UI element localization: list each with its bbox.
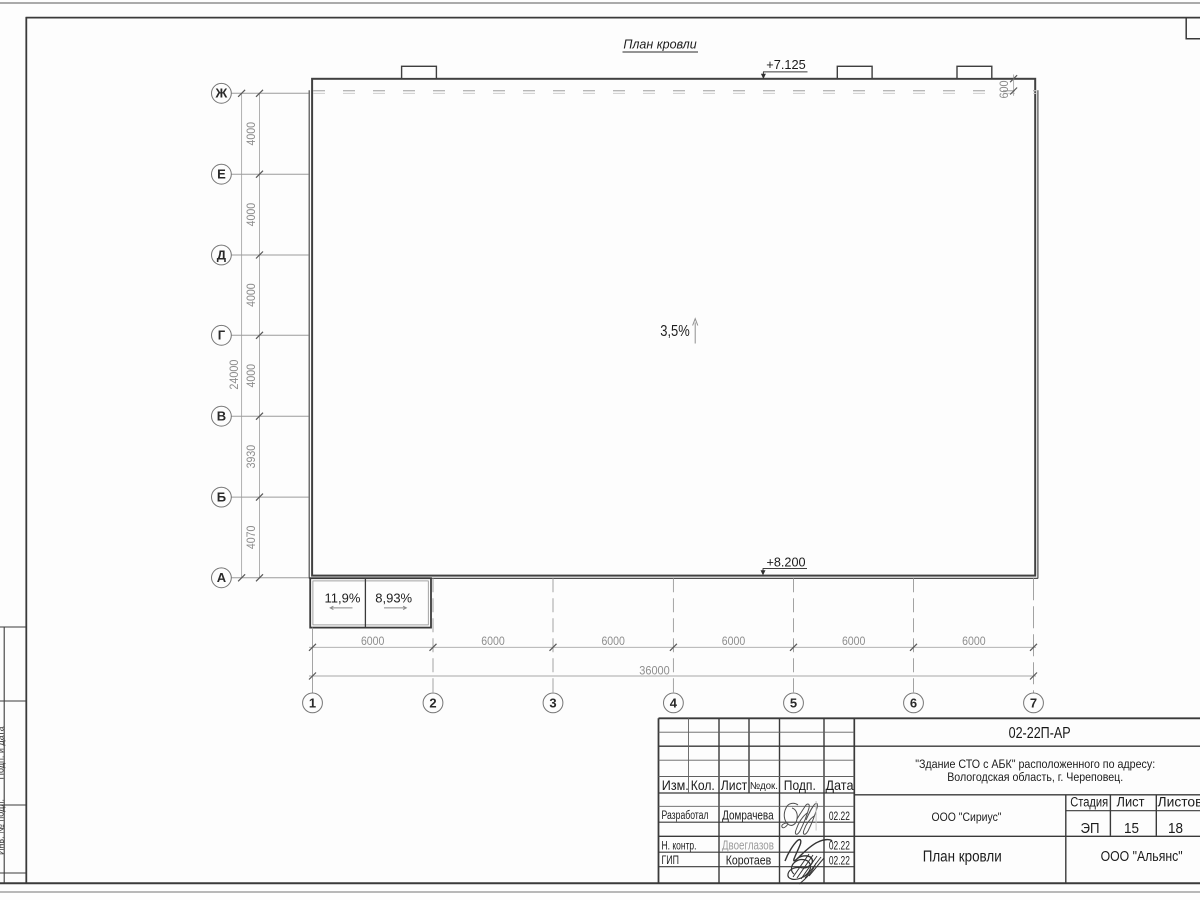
svg-text:ЭП: ЭП — [1081, 821, 1100, 837]
svg-text:11,9%: 11,9% — [325, 590, 361, 605]
svg-text:6000: 6000 — [842, 636, 866, 648]
svg-text:В: В — [217, 409, 226, 424]
svg-text:4070: 4070 — [244, 525, 258, 549]
svg-text:02.22: 02.22 — [829, 811, 850, 823]
svg-text:Подп. и дата: Подп. и дата — [0, 726, 5, 779]
svg-text:02-22П-АР: 02-22П-АР — [1009, 725, 1071, 742]
svg-text:6000: 6000 — [722, 636, 746, 648]
svg-text:Инв. № подл.: Инв. № подл. — [0, 799, 5, 855]
svg-text:1: 1 — [309, 695, 316, 710]
svg-text:Подп.: Подп. — [784, 777, 816, 793]
svg-text:"Здание СТО с АБК" расположенн: "Здание СТО с АБК" расположенного по адр… — [915, 757, 1155, 771]
svg-text:3930: 3930 — [244, 445, 258, 469]
svg-text:4000: 4000 — [244, 122, 258, 146]
svg-text:4000: 4000 — [244, 203, 258, 227]
svg-text:4000: 4000 — [244, 364, 258, 388]
svg-text:План кровли: План кровли — [923, 848, 1002, 865]
svg-text:№док.: №док. — [750, 781, 778, 792]
svg-text:Лист: Лист — [721, 777, 748, 793]
svg-text:Листов: Листов — [1158, 794, 1200, 809]
svg-text:24000: 24000 — [227, 359, 241, 389]
svg-text:План кровли: План кровли — [623, 38, 696, 52]
svg-text:Кол.: Кол. — [691, 777, 715, 793]
svg-text:Е: Е — [217, 167, 226, 182]
svg-text:Разработал: Разработал — [662, 810, 709, 822]
svg-text:+7.125: +7.125 — [766, 57, 806, 72]
svg-text:4000: 4000 — [244, 283, 258, 307]
svg-text:Коротаев: Коротаев — [726, 853, 772, 867]
svg-text:02.22: 02.22 — [829, 855, 850, 867]
svg-text:Стадия: Стадия — [1070, 794, 1108, 809]
svg-text:Д: Д — [217, 247, 227, 262]
svg-text:6000: 6000 — [601, 636, 625, 648]
svg-text:Изм.: Изм. — [662, 777, 689, 793]
svg-text:6: 6 — [910, 695, 917, 710]
svg-text:18: 18 — [1168, 821, 1183, 837]
svg-text:ГИП: ГИП — [662, 853, 680, 867]
svg-text:6000: 6000 — [481, 636, 505, 648]
svg-text:5: 5 — [790, 695, 797, 710]
svg-text:600: 600 — [997, 80, 1011, 98]
svg-text:Двоеглазов: Двоеглазов — [722, 838, 774, 852]
svg-text:Б: Б — [217, 490, 226, 505]
svg-text:4: 4 — [670, 695, 678, 710]
svg-text:36000: 36000 — [639, 666, 670, 678]
svg-text:+8.200: +8.200 — [767, 554, 806, 569]
svg-text:ООО "Сириус": ООО "Сириус" — [932, 810, 1002, 824]
svg-text:6000: 6000 — [962, 636, 986, 648]
svg-text:Г: Г — [218, 328, 226, 343]
svg-text:3,5%: 3,5% — [660, 323, 690, 340]
svg-text:Вологодская область, г. Черепо: Вологодская область, г. Череповец. — [947, 770, 1123, 784]
svg-text:Дата: Дата — [826, 777, 854, 793]
svg-text:А: А — [217, 570, 227, 585]
svg-text:6000: 6000 — [361, 636, 385, 648]
svg-text:ООО "Альянс": ООО "Альянс" — [1101, 848, 1183, 865]
svg-text:2: 2 — [429, 695, 436, 710]
svg-text:7: 7 — [1030, 695, 1037, 710]
svg-text:02.22: 02.22 — [829, 840, 850, 852]
svg-text:3: 3 — [549, 695, 556, 710]
svg-text:Лист: Лист — [1117, 794, 1145, 809]
svg-text:Домрачева: Домрачева — [722, 808, 774, 822]
svg-text:8,93%: 8,93% — [375, 590, 412, 605]
svg-text:15: 15 — [1124, 821, 1139, 837]
svg-text:Н. контр.: Н. контр. — [662, 840, 697, 852]
svg-text:Ж: Ж — [215, 86, 228, 101]
